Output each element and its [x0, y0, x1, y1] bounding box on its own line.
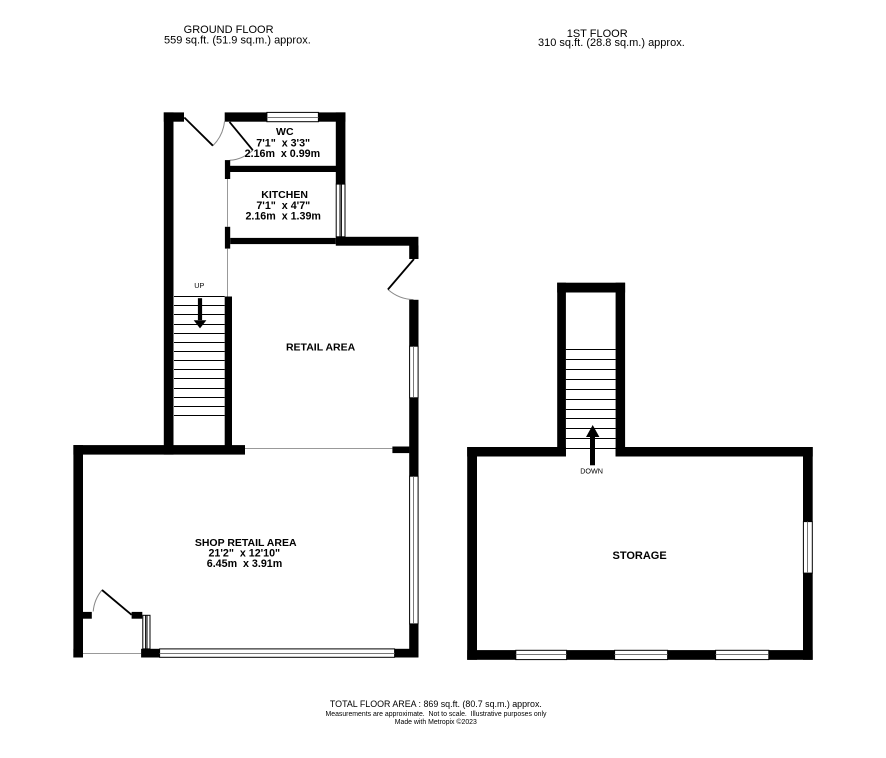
svg-text:2.16m x 0.99m: 2.16m x 0.99m — [245, 148, 320, 160]
svg-text:RETAIL AREA: RETAIL AREA — [286, 341, 356, 353]
svg-text:WC: WC — [276, 126, 294, 138]
svg-text:Measurements are approximate.: Measurements are approximate. Not to sca… — [326, 711, 548, 718]
svg-text:310 sq.ft. (28.8 sq.m.) approx: 310 sq.ft. (28.8 sq.m.) approx. — [538, 37, 685, 49]
svg-text:UP: UP — [194, 281, 204, 290]
svg-text:STORAGE: STORAGE — [612, 550, 666, 562]
svg-text:2.16m x 1.39m: 2.16m x 1.39m — [245, 211, 320, 223]
svg-text:DOWN: DOWN — [580, 466, 603, 475]
svg-text:6.45m x 3.91m: 6.45m x 3.91m — [207, 558, 282, 570]
svg-text:TOTAL FLOOR AREA : 869 sq.ft.: TOTAL FLOOR AREA : 869 sq.ft. (80.7 sq.m… — [330, 699, 542, 709]
svg-text:559 sq.ft. (51.9 sq.m.) approx: 559 sq.ft. (51.9 sq.m.) approx. — [164, 34, 311, 46]
svg-text:Made with Metropix ©2023: Made with Metropix ©2023 — [395, 718, 477, 726]
